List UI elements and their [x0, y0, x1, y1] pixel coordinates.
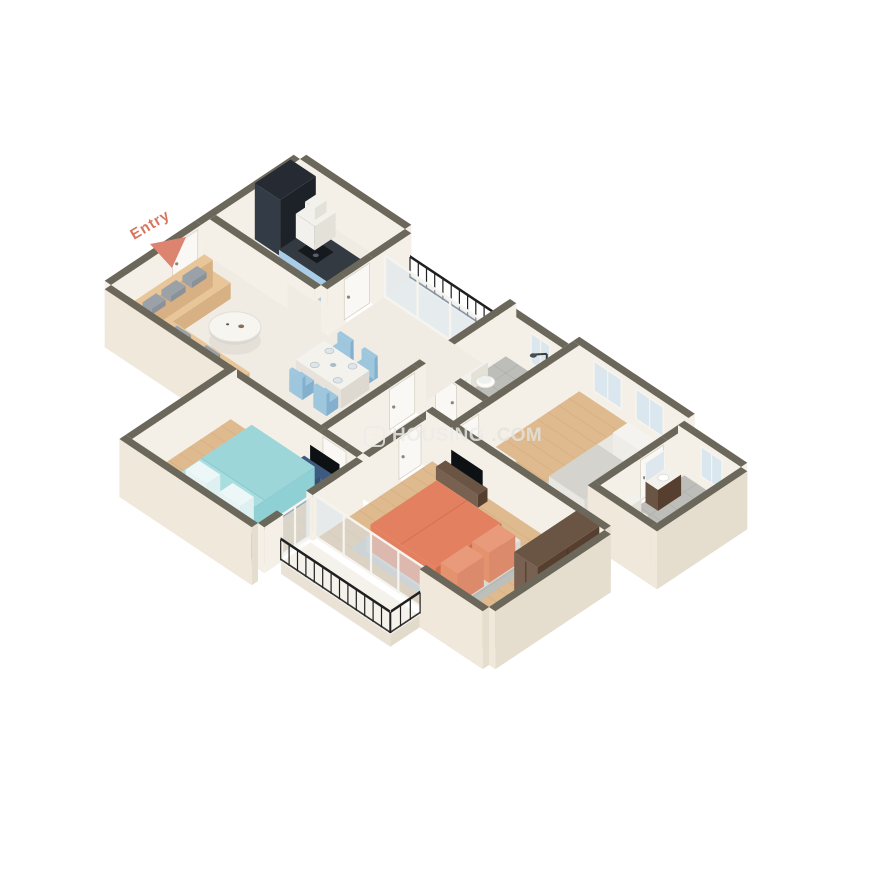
floorplan-canvas: Entry ⌂ HOUSING .COM: [0, 0, 870, 870]
floorplan-3d-render: Entry: [0, 0, 870, 870]
entry-label: Entry: [127, 207, 173, 244]
